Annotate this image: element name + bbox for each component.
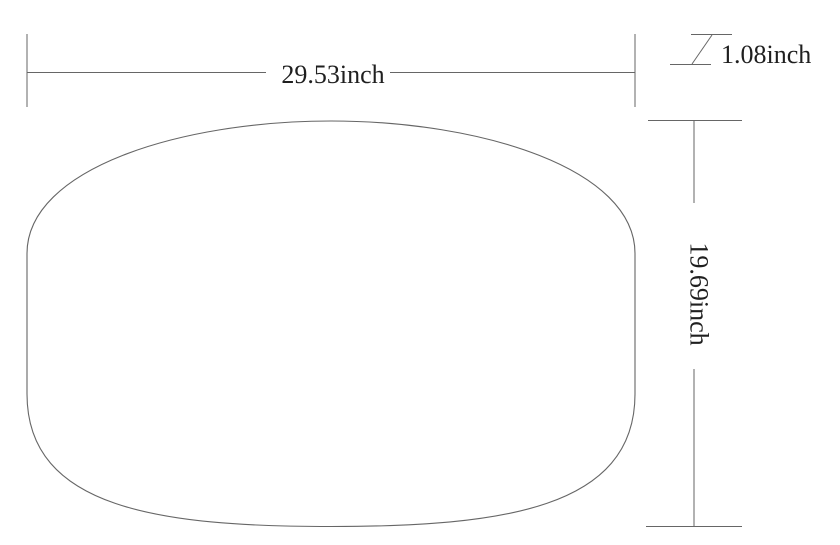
thickness-dimension-label: 1.08inch bbox=[721, 40, 811, 69]
height-dimension: 19.69inch bbox=[646, 121, 742, 527]
width-dimension: 29.53inch bbox=[27, 34, 635, 107]
drawing-canvas: 29.53inch 1.08inch 19.69inch bbox=[0, 0, 840, 545]
technical-drawing-page: 29.53inch 1.08inch 19.69inch bbox=[0, 0, 840, 545]
width-dimension-label: 29.53inch bbox=[281, 60, 384, 89]
part-outline-shape bbox=[27, 121, 635, 527]
thickness-callout: 1.08inch bbox=[670, 35, 811, 70]
thickness-symbol-diagonal-line bbox=[692, 35, 712, 64]
height-dimension-label: 19.69inch bbox=[685, 242, 714, 345]
